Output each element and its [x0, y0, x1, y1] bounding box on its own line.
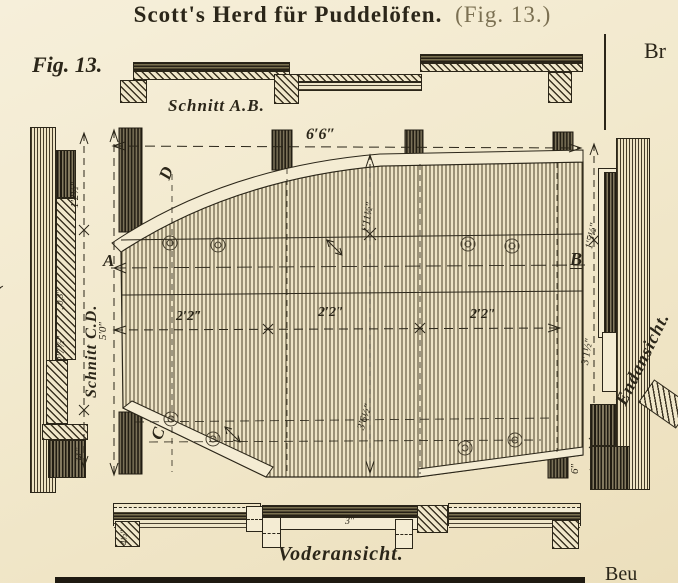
front-post-1-dash [247, 519, 262, 520]
point-label-b: B [570, 250, 582, 269]
dim-left-mid: 2′7½″ [56, 336, 67, 362]
dim-plan-seg1: 2′2″ [176, 310, 202, 324]
front-hatch-post [417, 505, 448, 533]
front-post-1 [246, 506, 263, 532]
margin-text-left: ( [0, 282, 4, 309]
front-view-caption: Voderansicht. [278, 544, 404, 564]
dim-plan-width: 6′6″ [306, 127, 335, 143]
side-column-step [46, 360, 68, 424]
beam-leg-left [120, 80, 147, 103]
column-rule [604, 34, 606, 130]
margin-text-bottom: Beu [605, 564, 637, 583]
dim-front-left: 4½″ [120, 530, 129, 545]
front-foot-right [552, 520, 579, 549]
section-ab-caption: Schnitt A.B. [168, 97, 265, 114]
beam-plate-left [133, 71, 290, 80]
figure-number-label: Fig. 13. [32, 54, 102, 76]
end-rail [616, 138, 650, 490]
beam-leg-right [548, 72, 572, 103]
beam-leg-middle [274, 74, 299, 104]
section-cd-caption: Schnitt C.D. [84, 305, 100, 398]
beam-plate-right [420, 63, 583, 72]
front-beam-right-dashline [449, 507, 580, 508]
left-dimension-line [76, 128, 92, 474]
end-foot-lower [590, 446, 630, 490]
end-foot-upper [590, 404, 616, 446]
engraving-sheet: Scott's Herd für Puddelöfen. (Fig. 13.) … [0, 0, 678, 583]
page-title-main: Scott's Herd für Puddelöfen. [134, 2, 443, 27]
beam-plate-top-right [420, 54, 583, 63]
dim-end-bottom: 6″ [570, 464, 581, 474]
page-title-fig-ref: (Fig. 13.) [455, 2, 551, 27]
page-title: Scott's Herd für Puddelöfen. (Fig. 13.) [70, 3, 615, 26]
point-label-a: A [103, 252, 114, 269]
beam-plate-top-left [133, 62, 290, 71]
front-beam-left-dark-strip [114, 512, 260, 520]
dim-left-small: „0,3″ [56, 290, 65, 310]
margin-text-right: Br [644, 40, 666, 62]
front-beam-left-dashline [114, 507, 260, 508]
front-post-3-dash [396, 534, 412, 535]
dim-left-top: 1′2½″ [70, 182, 81, 208]
front-beam-right-dark-strip [449, 512, 580, 520]
dim-left-bottom: 11″ [74, 447, 85, 462]
beam-plate-middle [288, 74, 422, 82]
beam-plate-middle-lower [288, 82, 422, 91]
front-center-bar [262, 505, 419, 517]
dim-front-mid: 3″ [345, 517, 354, 527]
dim-plan-seg2: 2′2″ [318, 306, 344, 320]
dim-plan-seg3: 2′2″ [470, 308, 496, 322]
front-post-2-dash [263, 533, 280, 534]
bottom-rule [55, 577, 585, 583]
